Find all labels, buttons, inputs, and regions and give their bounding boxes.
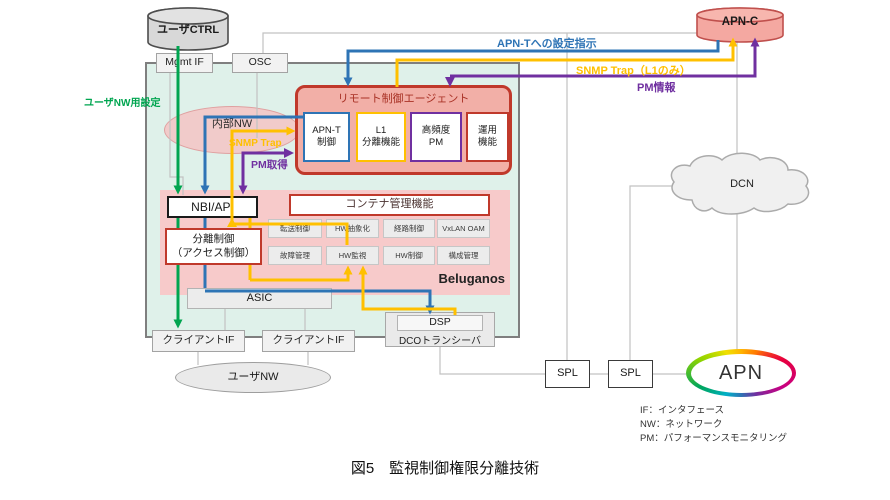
flow-label-snmp-trap: SNMP Trap <box>229 138 282 149</box>
nbi-api-box: NBI/API <box>167 196 258 218</box>
beluganos-label: Beluganos <box>410 271 505 286</box>
asic-label: ASIC <box>247 292 273 306</box>
connector-osc-apnc <box>263 33 702 53</box>
beluganos-module-routing: 経路制御 <box>383 219 435 238</box>
apn-t-control-label: APN-T 制御 <box>312 125 341 149</box>
high-freq-pm-box: 高頻度 PM <box>410 112 462 162</box>
module-label: 転送制御 <box>280 224 310 233</box>
separation-control-box: 分離制御 （アクセス制御） <box>165 228 262 265</box>
beluganos-module-config-mgmt: 構成管理 <box>437 246 490 265</box>
figure-caption: 図5 監視制御権限分離技術 <box>0 457 890 478</box>
mgmt-if-box: Mgmt IF <box>156 53 213 73</box>
beluganos-module-hw-monitor: HW監視 <box>326 246 379 265</box>
module-label: 故障管理 <box>280 251 310 260</box>
module-label: HW抽象化 <box>335 224 370 233</box>
diagram-canvas: 内部NW Mgmt IF OSC リモート制御エージェント APN-T 制御 L… <box>0 0 890 500</box>
user-nw-label: ユーザNW <box>227 371 278 385</box>
legend-line-nw: NW：ネットワーク <box>640 418 787 432</box>
client-if-label: クライアントIF <box>163 334 235 347</box>
flow-label-user-nw-config: ユーザNW用設定 <box>84 94 160 109</box>
spl-label: SPL <box>557 367 578 381</box>
legend-line-if: IF：インタフェース <box>640 404 787 418</box>
asic-box: ASIC <box>187 288 332 309</box>
client-if-box-1: クライアントIF <box>152 330 245 352</box>
apn-ellipse: APN <box>686 349 796 397</box>
osc-box: OSC <box>232 53 288 73</box>
client-if-box-2: クライアントIF <box>262 330 355 352</box>
user-nw-ellipse: ユーザNW <box>175 362 331 393</box>
apn-label: APN <box>719 362 763 385</box>
container-mgmt-label: コンテナ管理機能 <box>346 198 434 212</box>
high-freq-pm-label: 高頻度 PM <box>422 125 451 149</box>
internal-nw-label: 内部NW <box>164 115 300 131</box>
l1-separation-box: L1 分離機能 <box>356 112 406 162</box>
flow-label-pm-info: PM情報 <box>637 79 676 95</box>
operation-func-box: 運用 機能 <box>466 112 509 162</box>
spl-label: SPL <box>620 367 641 381</box>
operation-func-label: 運用 機能 <box>478 125 497 149</box>
spl-box-1: SPL <box>545 360 590 388</box>
module-label: VxLAN OAM <box>442 224 485 233</box>
dco-transceiver-label: DCOトランシーバ <box>385 332 495 347</box>
dsp-box: DSP <box>397 315 483 331</box>
flow-label-apn-t-config: APN-Tへの設定指示 <box>497 35 597 51</box>
module-label: HW制御 <box>395 251 423 260</box>
beluganos-module-vxlan-oam: VxLAN OAM <box>437 219 490 238</box>
client-if-label: クライアントIF <box>273 334 345 347</box>
module-label: 構成管理 <box>449 251 479 260</box>
nbi-api-label: NBI/API <box>191 200 234 215</box>
mgmt-if-label: Mgmt IF <box>165 56 204 69</box>
osc-label: OSC <box>249 56 272 69</box>
beluganos-module-forwarding: 転送制御 <box>268 219 322 238</box>
legend: IF：インタフェース NW：ネットワーク PM：パフォーマンスモニタリング <box>640 404 787 445</box>
dcn-label: DCN <box>662 178 822 190</box>
beluganos-module-fault-mgmt: 故障管理 <box>268 246 322 265</box>
flow-label-snmp-trap-l1: SNMP Trap（L1のみ） <box>576 62 691 78</box>
dsp-label: DSP <box>429 316 451 329</box>
spl-box-2: SPL <box>608 360 653 388</box>
apn-t-control-box: APN-T 制御 <box>303 112 350 162</box>
l1-separation-label: L1 分離機能 <box>362 125 400 149</box>
beluganos-module-hw-control: HW制御 <box>383 246 435 265</box>
remote-agent-title: リモート制御エージェント <box>295 90 512 106</box>
user-ctrl-label: ユーザCTRL <box>146 21 230 37</box>
beluganos-module-hw-abstraction: HW抽象化 <box>326 219 379 238</box>
container-mgmt-box: コンテナ管理機能 <box>289 194 490 216</box>
module-label: 経路制御 <box>394 224 424 233</box>
connector-dco-spl1 <box>440 347 545 374</box>
separation-control-label: 分離制御 （アクセス制御） <box>172 233 255 259</box>
module-label: HW監視 <box>339 251 367 260</box>
apn-c-label: APN-C <box>695 16 785 28</box>
legend-line-pm: PM：パフォーマンスモニタリング <box>640 432 787 446</box>
flow-label-pm-get: PM取得 <box>251 157 288 172</box>
